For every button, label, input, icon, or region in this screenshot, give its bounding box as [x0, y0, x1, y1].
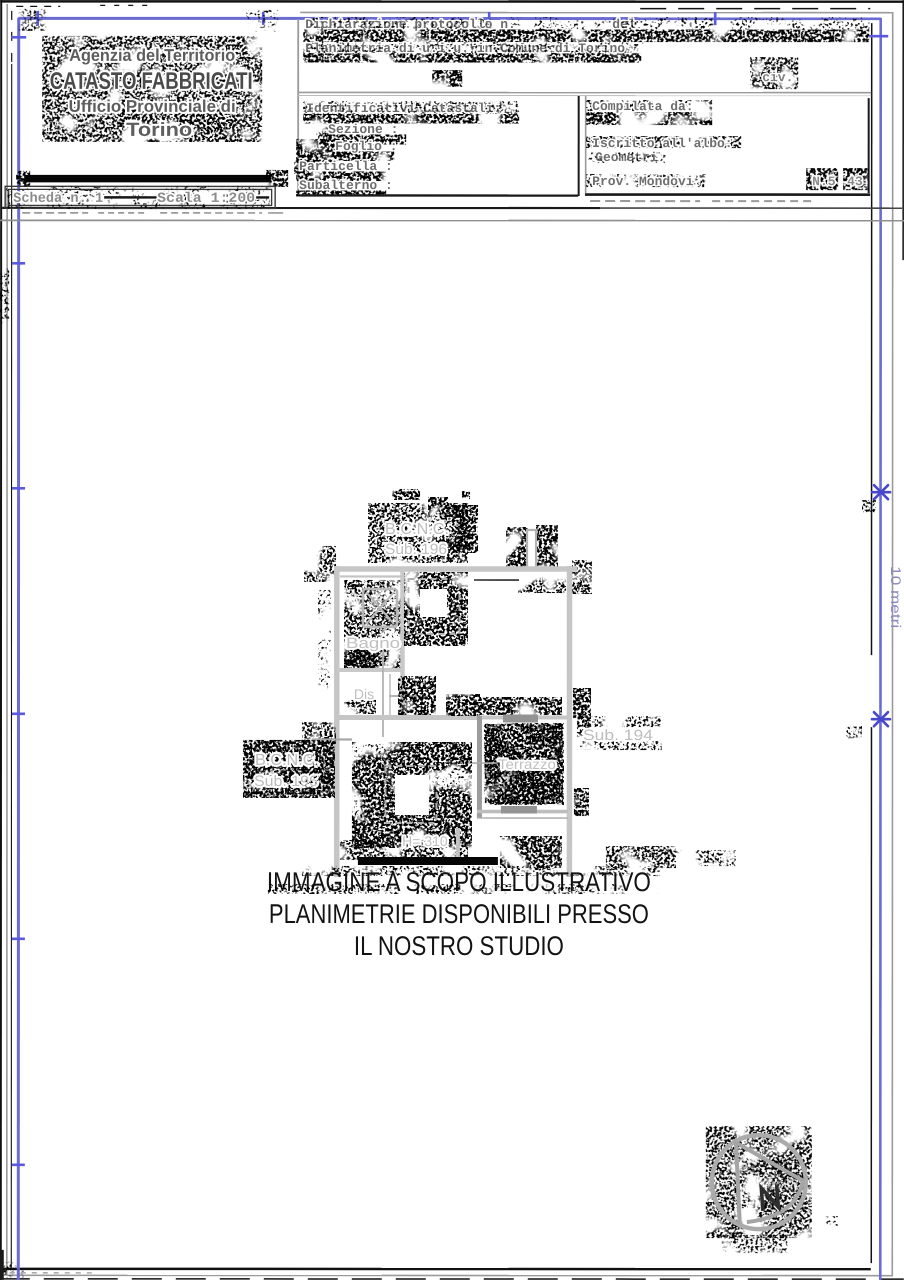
- svg-text:Sub. 196: Sub. 196: [385, 541, 447, 558]
- svg-text:Particella :: Particella :: [299, 159, 393, 174]
- svg-text:PLANIMETRIE DISPONIBILI PRESSO: PLANIMETRIE DISPONIBILI PRESSO: [269, 899, 649, 929]
- svg-text:Scala 1:200: Scala 1:200: [157, 191, 255, 207]
- svg-text:Terrazzo: Terrazzo: [498, 756, 556, 772]
- svg-text:IL NOSTRO STUDIO: IL NOSTRO STUDIO: [354, 931, 564, 961]
- svg-text:10 metri: 10 metri: [888, 566, 904, 628]
- svg-text:Sub. 194: Sub. 194: [583, 727, 653, 744]
- svg-text:H= 310: H= 310: [402, 833, 448, 849]
- svg-text:43: 43: [847, 174, 863, 189]
- svg-text:Prov. Mondovi: Prov. Mondovi: [592, 174, 694, 189]
- svg-text:Subalterno :: Subalterno :: [299, 178, 393, 193]
- svg-text:Bagno: Bagno: [346, 635, 400, 652]
- svg-text:N.5: N.5: [812, 174, 836, 189]
- svg-text:Foglio :: Foglio :: [335, 139, 397, 154]
- svg-text:civ.: civ.: [762, 70, 793, 85]
- svg-text:Ufficio Provinciale di: Ufficio Provinciale di: [69, 97, 236, 116]
- svg-text:Dis: Dis: [354, 686, 374, 702]
- svg-text:Agenzia del Territorio: Agenzia del Territorio: [69, 46, 235, 65]
- svg-text:Scheda n. 1: Scheda n. 1: [13, 191, 103, 207]
- svg-text:Iscritto all'albo:: Iscritto all'albo:: [592, 136, 732, 151]
- svg-text:B.C.N.C.: B.C.N.C.: [385, 521, 449, 538]
- svg-text:CATASTO FABBRICATI: CATASTO FABBRICATI: [50, 68, 253, 95]
- svg-text:Sezione :: Sezione :: [328, 122, 398, 137]
- svg-text:Compilata da:: Compilata da:: [592, 99, 693, 114]
- svg-text:Torino: Torino: [126, 120, 192, 141]
